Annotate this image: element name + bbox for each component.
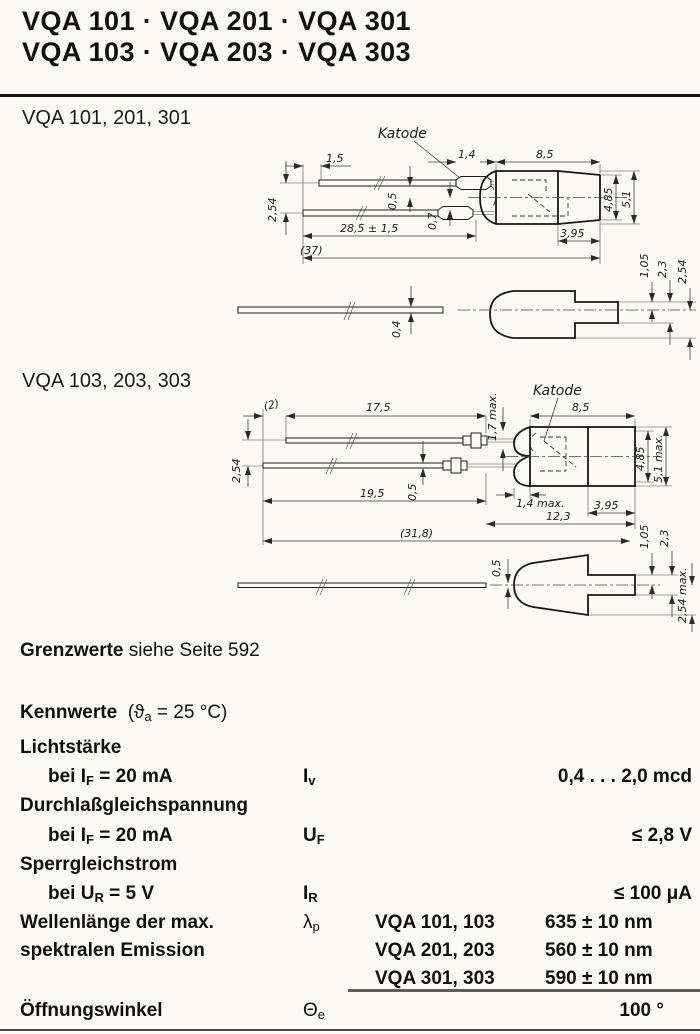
dim-2-54-label: 2,54 — [266, 198, 279, 223]
param-name-wellenlaenge-2: spektralen Emission — [20, 940, 205, 962]
dim-2-3-label: 2,3 — [658, 530, 671, 548]
variant-types-row1: VQA 101, 103 — [375, 912, 495, 934]
param-condition: bei UR = 5 V — [48, 883, 154, 905]
dim-1-5-label: 1,5 — [326, 152, 344, 165]
param-name-wellenlaenge-1: Wellenlänge der max. — [20, 912, 214, 934]
katode-label: Katode — [378, 126, 427, 142]
param-value-ir: ≤ 100 μA — [614, 883, 692, 905]
dim-1-05-label: 1,05 — [638, 525, 651, 550]
kennwerte-cond-pre: (ϑ — [128, 702, 145, 723]
param-name-sperrstrom: Sperrgleichstrom — [20, 854, 177, 876]
dim-0-5-label: 0,5 — [386, 193, 399, 211]
kennwerte-cond-post: = 25 °C) — [152, 702, 228, 723]
grenzwerte-rest: siehe Seite 592 — [123, 640, 259, 661]
dim-3-95-label: 3,95 — [594, 499, 619, 512]
dim-1-05-label: 1,05 — [638, 254, 651, 279]
led-leads-top-view — [263, 433, 516, 474]
title-line-1: VQA 101 · VQA 201 · VQA 301 — [22, 6, 411, 37]
param-name-lichtstaerke: Lichtstärke — [20, 737, 121, 759]
param-symbol-theta-e: Θe — [303, 1000, 325, 1022]
param-symbol-iv: Iv — [303, 766, 316, 788]
led-side-view — [238, 291, 696, 338]
dim-5-1-max-label: 5,1 max. — [652, 435, 665, 483]
dim-37-label: (37) — [300, 244, 323, 257]
dim-12-3-label: 12,3 — [546, 510, 571, 523]
dim-1-4-max-label: 1,4 max. — [516, 497, 564, 510]
variant-value-row1: 635 ± 10 nm — [545, 912, 653, 934]
dim-0-4-label: 0,4 — [390, 321, 403, 339]
dim-1-4-label: 1,4 — [458, 148, 476, 161]
variant-types-row3: VQA 301, 303 — [375, 968, 495, 990]
dim-0-7-label: 0,7 — [426, 213, 439, 231]
scan-artifact-line — [348, 989, 700, 992]
param-value-uf: ≤ 2,8 V — [632, 825, 692, 847]
dim-1-7-max-label: 1,7 max. — [486, 393, 499, 441]
dim-31-8-label: (31,8) — [400, 527, 433, 540]
param-condition: bei IF = 20 mA — [48, 825, 173, 847]
variant-value-row2: 560 ± 10 nm — [545, 940, 653, 962]
dim-2-54-side-label: 2,54 — [676, 260, 689, 285]
dim-4-85-label: 4,85 — [634, 447, 647, 472]
dimension-lines — [280, 141, 690, 360]
title-divider — [0, 94, 700, 97]
param-name-oeffnungswinkel: Öffnungswinkel — [20, 1000, 163, 1022]
vqa101-dimension-drawing: Katode 1,5 1,4 8,5 2,54 0,5 0,7 28,5 ± 1… — [228, 124, 700, 372]
section-label-vqa103: VQA 103, 203, 303 — [22, 370, 191, 393]
param-value-iv: 0,4 . . . 2,0 mcd — [558, 766, 692, 788]
dim-8-5-label: 8,5 — [536, 148, 554, 161]
dim-2-offset-label: (2) — [262, 397, 280, 413]
dim-3-95-label: 3,95 — [560, 227, 585, 240]
variant-types-row2: VQA 201, 203 — [375, 940, 495, 962]
dim-28-5-label: 28,5 ± 1,5 — [340, 222, 398, 235]
led-side-view — [238, 555, 660, 615]
grenzwerte-line: Grenzwerte siehe Seite 592 — [20, 640, 260, 662]
param-symbol-uf: UF — [303, 825, 325, 847]
param-condition: bei IF = 20 mA — [48, 766, 173, 788]
dim-2-54-label: 2,54 — [230, 459, 243, 484]
dim-0-5-side-label: 0,5 — [490, 560, 503, 578]
grenzwerte-bold: Grenzwerte — [20, 640, 123, 661]
param-symbol-ir: IR — [303, 883, 318, 905]
kennwerte-title: Kennwerte — [20, 702, 117, 723]
param-value-theta-e: 100 ° — [619, 1000, 664, 1022]
param-name-durchlassspannung: Durchlaßgleichspannung — [20, 795, 248, 817]
dim-0-5-label: 0,5 — [406, 484, 419, 502]
section-label-vqa101: VQA 101, 201, 301 — [22, 107, 191, 130]
dim-2-54-max-label: 2,54 max. — [676, 568, 689, 623]
title-line-2: VQA 103 · VQA 203 · VQA 303 — [22, 37, 411, 68]
datasheet-page: VQA 101 · VQA 201 · VQA 301 VQA 103 · VQ… — [0, 0, 700, 1034]
variant-value-row3: 590 ± 10 nm — [545, 968, 653, 990]
page-title: VQA 101 · VQA 201 · VQA 301 VQA 103 · VQ… — [22, 6, 411, 68]
dim-19-5-label: 19,5 — [360, 487, 385, 500]
dim-17-5-label: 17,5 — [366, 401, 391, 414]
dim-5-1-label: 5,1 — [620, 191, 633, 209]
kennwerte-cond-sub: a — [144, 709, 151, 724]
param-symbol-lambda-p: λp — [303, 912, 320, 934]
dim-4-85-label: 4,85 — [602, 188, 615, 213]
dim-2-3-label: 2,3 — [656, 261, 669, 279]
kennwerte-heading: Kennwerte (ϑa = 25 °C) — [20, 702, 227, 724]
dim-8-5-label: 8,5 — [572, 401, 590, 414]
vqa103-dimension-drawing: Katode (2) 17,5 1,7 max. 8,5 2,54 0,5 19… — [228, 383, 700, 633]
dimension-lines — [242, 398, 692, 632]
bottom-divider — [0, 1029, 700, 1031]
katode-label: Katode — [533, 383, 582, 399]
